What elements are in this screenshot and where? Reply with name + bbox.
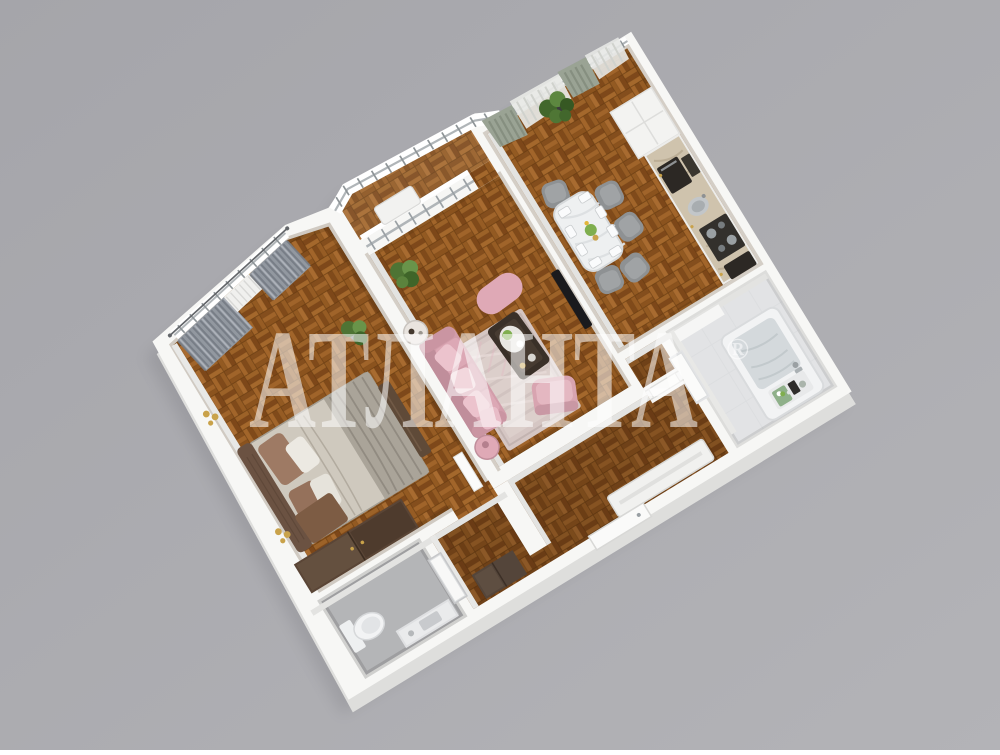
svg-text:АТЛАНТА: АТЛАНТА	[249, 300, 698, 458]
svg-text:®: ®	[726, 331, 749, 366]
